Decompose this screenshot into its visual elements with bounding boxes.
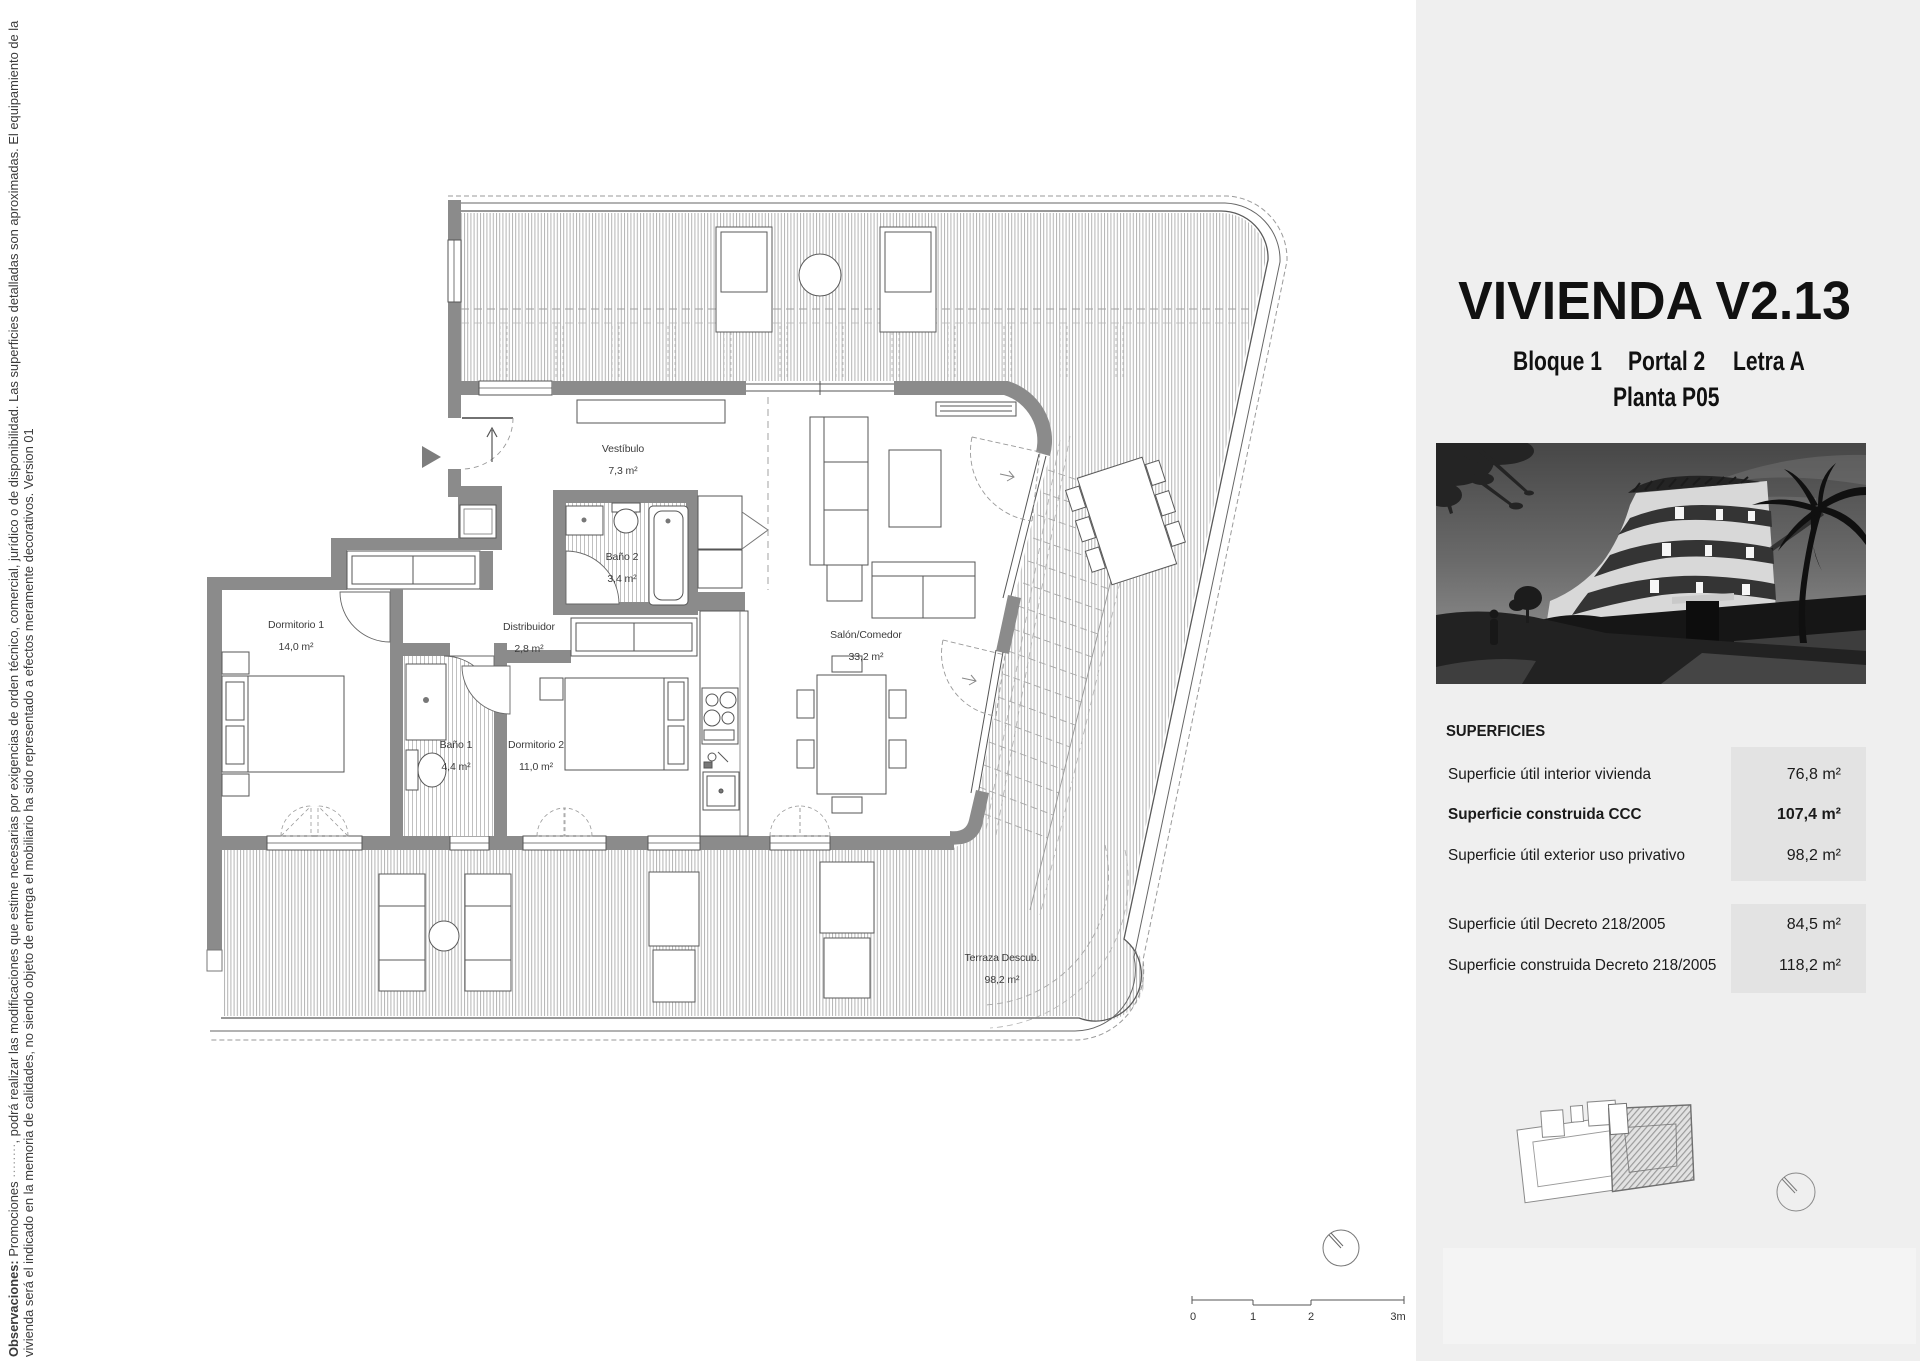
- svg-text:2: 2: [1308, 1311, 1314, 1323]
- svg-text:Dormitorio 1: Dormitorio 1: [268, 619, 324, 631]
- svg-text:3,4 m²: 3,4 m²: [607, 573, 637, 585]
- svg-text:7,3 m²: 7,3 m²: [608, 465, 638, 477]
- svg-text:4,4 m²: 4,4 m²: [441, 761, 471, 773]
- svg-text:33,2 m²: 33,2 m²: [849, 651, 884, 663]
- svg-text:Vestíbulo: Vestíbulo: [602, 443, 645, 455]
- svg-text:11,0 m²: 11,0 m²: [519, 761, 554, 773]
- svg-text:Baño 1: Baño 1: [440, 739, 473, 751]
- svg-text:2,8 m²: 2,8 m²: [514, 643, 544, 655]
- svg-text:1: 1: [1250, 1311, 1256, 1323]
- svg-text:Dormitorio 2: Dormitorio 2: [508, 739, 564, 751]
- svg-text:Salón/Comedor: Salón/Comedor: [830, 629, 902, 641]
- svg-text:Terraza Descub.: Terraza Descub.: [965, 952, 1040, 964]
- svg-text:3m: 3m: [1390, 1311, 1405, 1323]
- svg-text:0: 0: [1190, 1311, 1196, 1323]
- svg-text:14,0 m²: 14,0 m²: [279, 641, 314, 653]
- svg-text:Distribuidor: Distribuidor: [503, 621, 556, 633]
- svg-text:Baño 2: Baño 2: [606, 551, 639, 563]
- svg-text:98,2 m²: 98,2 m²: [985, 974, 1020, 986]
